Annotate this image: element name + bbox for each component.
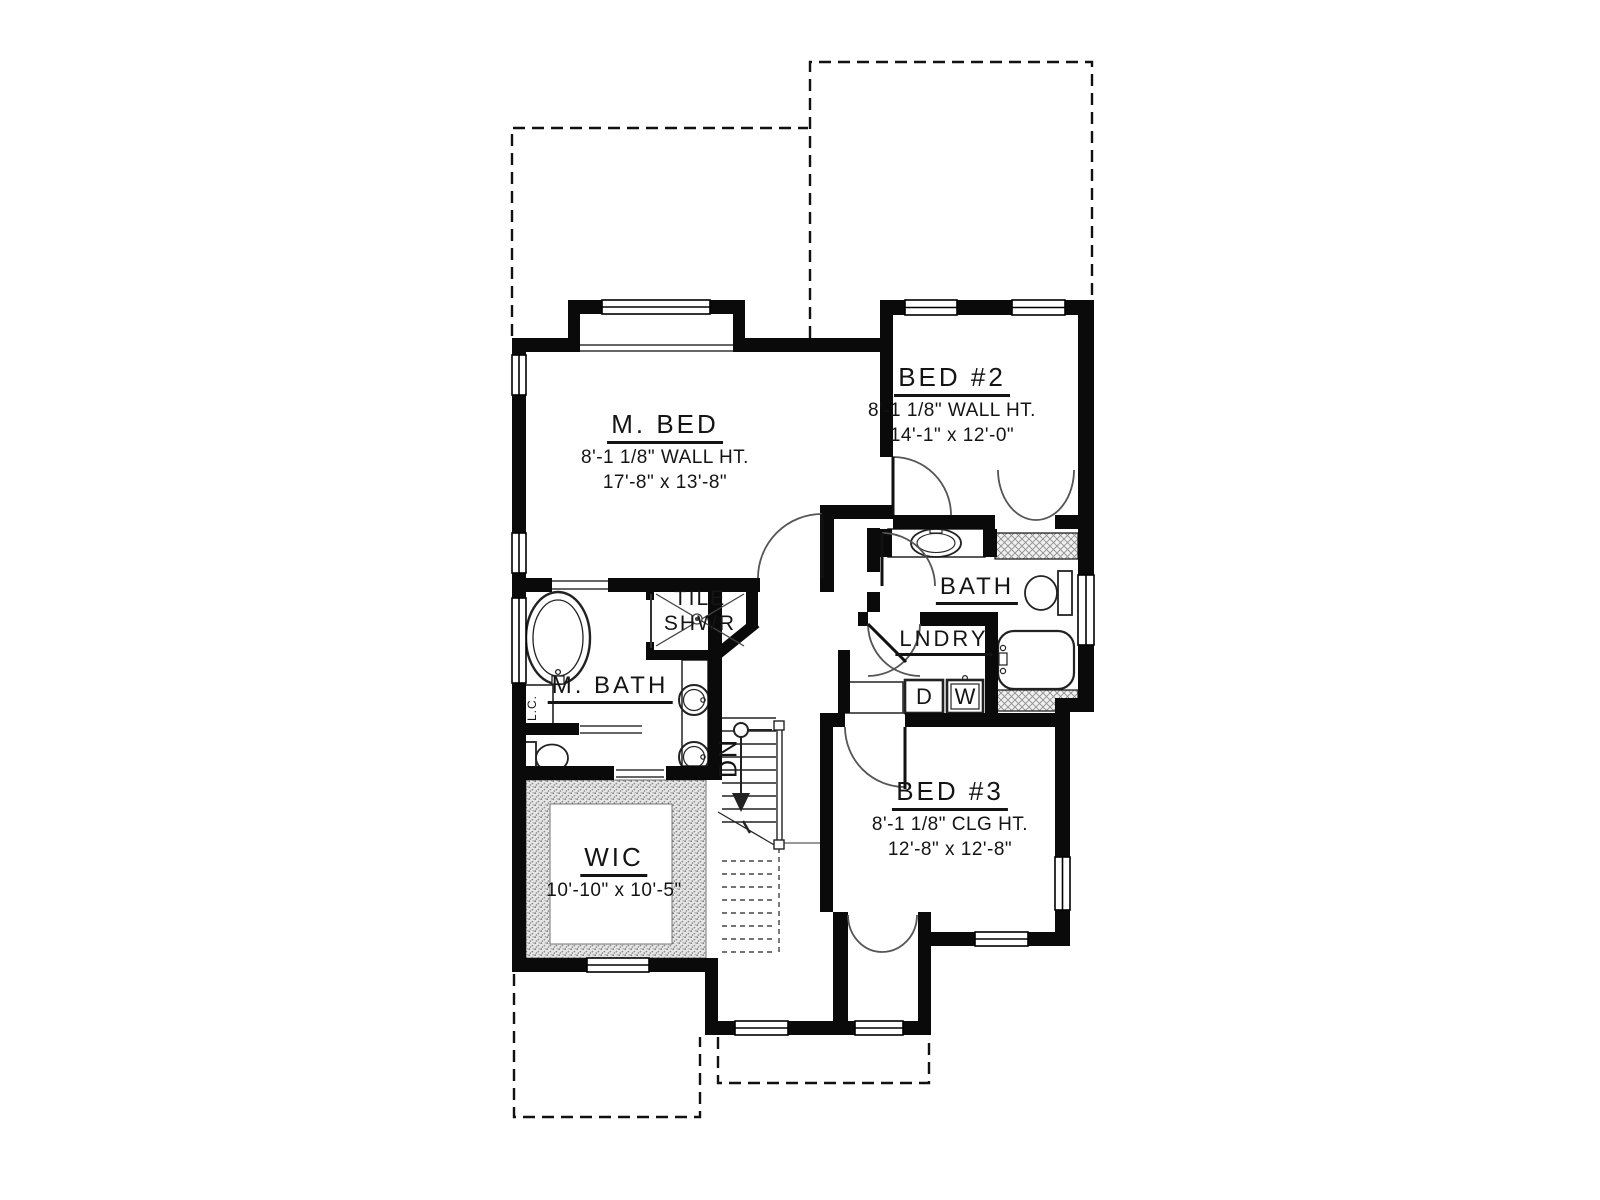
bump-window-right bbox=[855, 1021, 903, 1035]
stair-railing bbox=[774, 721, 784, 849]
tile-shower-line1: TILE bbox=[664, 587, 736, 612]
m-bath-name: M. BATH bbox=[548, 672, 673, 704]
closet-shelf-hatches bbox=[995, 533, 1078, 711]
bed2-door bbox=[893, 457, 951, 515]
mbath-window bbox=[512, 598, 526, 683]
bed2-closet-bifold bbox=[998, 470, 1074, 520]
bath-window bbox=[1078, 575, 1094, 645]
m-bed-size: 17'-8" x 13'-8" bbox=[581, 472, 749, 494]
room-label-bed-2: BED #2 8'-1 1/8" WALL HT. 14'-1" x 12'-0… bbox=[868, 362, 1036, 447]
label-dryer: D bbox=[916, 684, 932, 710]
wic-name: WIC bbox=[580, 842, 648, 877]
bed3-closet-bifold bbox=[848, 915, 917, 952]
m-bed-name: M. BED bbox=[607, 409, 723, 444]
mbed-window-upper bbox=[512, 355, 526, 395]
bed-3-name: BED #3 bbox=[892, 776, 1008, 811]
room-label-bath: BATH bbox=[936, 573, 1018, 605]
bed3-bottom-window bbox=[975, 932, 1028, 946]
room-label-lndry: LNDRY bbox=[895, 626, 992, 656]
roof-outline-bottom-right bbox=[718, 1036, 929, 1083]
bed-3-clg-height: 8'-1 1/8" CLG HT. bbox=[872, 814, 1028, 836]
bathtub-icon bbox=[998, 631, 1074, 689]
master-tub-icon bbox=[526, 592, 590, 684]
room-label-m-bath: M. BATH bbox=[548, 672, 673, 704]
mbed-door bbox=[758, 514, 822, 578]
floor-plan-drawing bbox=[0, 0, 1600, 1200]
room-label-m-bed: M. BED 8'-1 1/8" WALL HT. 17'-8" x 13'-8… bbox=[581, 409, 749, 494]
mbed-window-lower bbox=[512, 533, 526, 573]
bath-name: BATH bbox=[936, 573, 1018, 605]
roof-outline-top-right bbox=[810, 62, 1092, 338]
master-vanity-icon bbox=[679, 660, 709, 772]
m-bed-wall-height: 8'-1 1/8" WALL HT. bbox=[581, 447, 749, 469]
floor-plan-page: M. BED 8'-1 1/8" WALL HT. 17'-8" x 13'-8… bbox=[0, 0, 1600, 1200]
bed2-window-left bbox=[905, 300, 957, 315]
label-washer: W bbox=[955, 684, 976, 710]
bed-2-name: BED #2 bbox=[894, 362, 1010, 397]
bay-window bbox=[602, 300, 710, 314]
label-tile-shower: TILE SHWR bbox=[664, 587, 736, 637]
wic-window bbox=[587, 958, 649, 972]
wic-size: 10'-10" x 10'-5" bbox=[546, 880, 681, 902]
bump-window-left bbox=[735, 1021, 788, 1035]
bed2-window-right bbox=[1012, 300, 1065, 315]
bed-2-wall-height: 8'-1 1/8" WALL HT. bbox=[868, 400, 1036, 422]
room-label-wic: WIC 10'-10" x 10'-5" bbox=[546, 842, 681, 902]
bed3-side-window bbox=[1055, 857, 1070, 910]
bath-vanity-icon bbox=[888, 528, 985, 557]
bath-toilet-icon bbox=[1025, 571, 1072, 615]
label-stairs-down: DN bbox=[714, 738, 744, 778]
room-label-bed-3: BED #3 8'-1 1/8" CLG HT. 12'-8" x 12'-8" bbox=[872, 776, 1028, 861]
roof-outline-bottom-left bbox=[514, 974, 700, 1117]
bed-2-size: 14'-1" x 12'-0" bbox=[868, 425, 1036, 447]
bed-3-size: 12'-8" x 12'-8" bbox=[872, 839, 1028, 861]
tile-shower-line2: SHWR bbox=[664, 612, 736, 637]
lndry-name: LNDRY bbox=[895, 626, 992, 656]
label-linen-cabinet: L.C. bbox=[525, 695, 539, 721]
